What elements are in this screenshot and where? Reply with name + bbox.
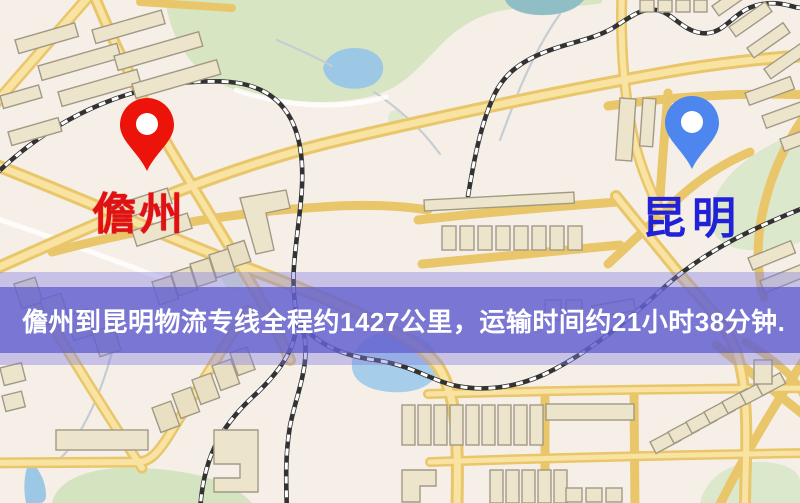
origin-pin-hole	[136, 113, 158, 135]
map-screenshot: 儋州 昆明 儋州到昆明物流专线全程约1427公里，运输时间约21小时38分钟.	[0, 0, 800, 503]
destination-city-label: 昆明	[642, 182, 742, 246]
destination-pin-hole	[681, 111, 703, 133]
map-canvas[interactable]	[0, 0, 800, 503]
route-banner-band: 儋州到昆明物流专线全程约1427公里，运输时间约21小时38分钟.	[0, 287, 800, 353]
route-banner: 儋州到昆明物流专线全程约1427公里，运输时间约21小时38分钟.	[0, 272, 800, 365]
route-banner-text: 儋州到昆明物流专线全程约1427公里，运输时间约21小时38分钟.	[0, 302, 785, 339]
origin-city-label: 儋州	[92, 178, 186, 242]
